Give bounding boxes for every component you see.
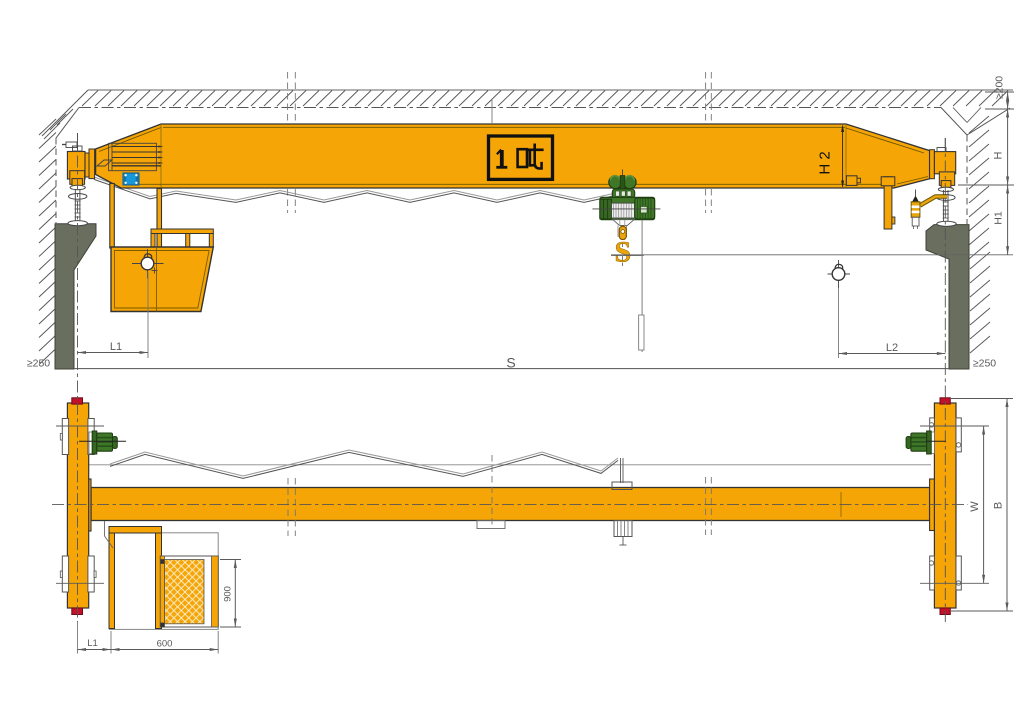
svg-text:H 2: H 2: [817, 151, 834, 174]
svg-text:H: H: [993, 151, 1005, 159]
svg-text:L1: L1: [87, 638, 98, 649]
svg-text:L1: L1: [110, 341, 122, 353]
svg-text:B: B: [993, 502, 1005, 509]
svg-text:H1: H1: [993, 211, 1005, 225]
svg-text:≥200: ≥200: [994, 76, 1006, 99]
svg-text:W: W: [969, 501, 981, 512]
svg-text:≥250: ≥250: [27, 358, 50, 370]
svg-text:≥250: ≥250: [973, 358, 996, 370]
svg-text:S: S: [506, 355, 515, 371]
svg-text:L2: L2: [886, 342, 898, 354]
svg-text:600: 600: [157, 639, 173, 650]
svg-text:900: 900: [223, 586, 234, 602]
svg-text:S: S: [614, 236, 631, 269]
